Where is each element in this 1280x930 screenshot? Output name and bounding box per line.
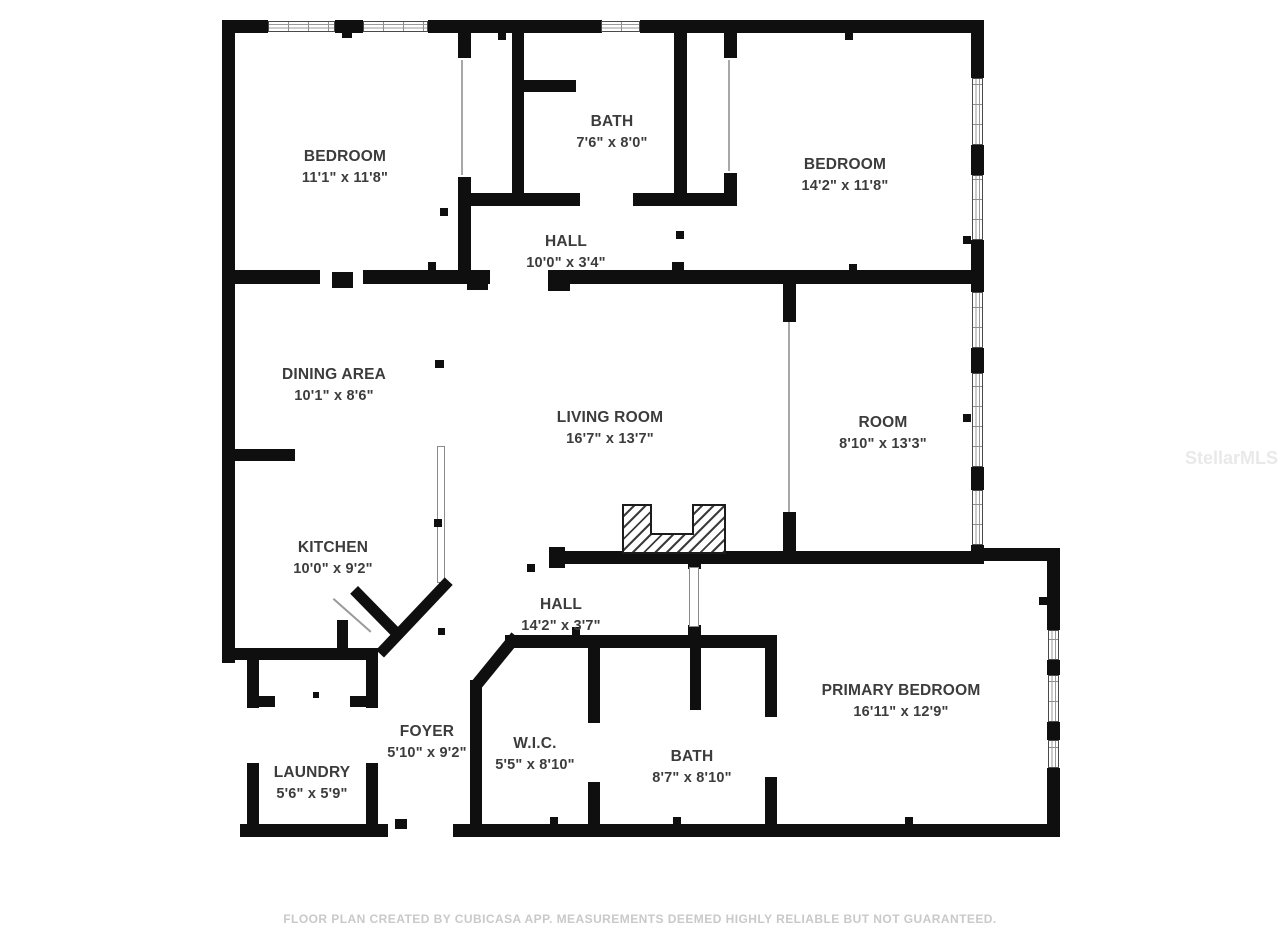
- room-name: PRIMARY BEDROOM: [822, 681, 981, 702]
- wall-end-cap: [549, 547, 565, 568]
- window: [1048, 675, 1059, 722]
- tick: [498, 33, 506, 40]
- room-name: HALL: [526, 232, 606, 253]
- room-name: DINING AREA: [282, 365, 386, 386]
- fireplace-firebox: [650, 504, 694, 535]
- window: [268, 21, 335, 32]
- wall-bath-right: [674, 30, 687, 203]
- room-dims: 5'5" x 8'10": [495, 755, 575, 776]
- wall-bath-bottom: [458, 193, 580, 206]
- tick: [313, 692, 319, 698]
- window: [972, 175, 983, 240]
- wall-wic-bath-divider: [588, 637, 600, 723]
- room-name: BEDROOM: [302, 147, 388, 168]
- room-dims: 8'10" x 13'3": [839, 434, 927, 455]
- room-name: HALL: [521, 595, 601, 616]
- door-jamb: [548, 270, 570, 291]
- tick: [440, 208, 448, 216]
- window: [1048, 740, 1059, 768]
- room-dims: 14'2" x 3'7": [521, 616, 601, 637]
- mls-watermark: StellarMLS: [1185, 448, 1278, 469]
- wall-entry-stub: [337, 620, 348, 649]
- room-name: ROOM: [839, 413, 927, 434]
- window: [972, 78, 983, 145]
- tick: [849, 264, 857, 271]
- tick: [963, 236, 971, 244]
- room-label-bath-top: BATH 7'6" x 8'0": [576, 112, 647, 153]
- wall-room-divider: [783, 284, 796, 322]
- tick: [342, 30, 352, 38]
- room-label-laundry: LAUNDRY 5'6" x 5'9": [274, 763, 351, 804]
- wall-primary-right: [1047, 722, 1060, 740]
- tick: [905, 817, 913, 825]
- room-divider-line: [788, 322, 790, 512]
- tick: [435, 360, 444, 368]
- tick: [428, 262, 436, 270]
- wall-left: [222, 20, 235, 663]
- room-label-hall-bottom: HALL 14'2" x 3'7": [521, 595, 601, 636]
- wall-primary-right: [1047, 660, 1060, 675]
- room-name: BATH: [652, 747, 732, 768]
- wall-right: [971, 467, 984, 490]
- wall-room-divider: [783, 512, 796, 554]
- room-label-bedroom-1: BEDROOM 11'1" x 11'8": [302, 147, 388, 188]
- room-label-primary-bedroom: PRIMARY BEDROOM 16'11" x 12'9": [822, 681, 981, 722]
- hall-primary-opening: [689, 567, 699, 627]
- wall-bedroom2-left: [724, 30, 737, 58]
- room-dims: 10'1" x 8'6": [282, 386, 386, 407]
- room-label-bath-bottom: BATH 8'7" x 8'10": [652, 747, 732, 788]
- tick: [672, 262, 684, 271]
- room-name: LAUNDRY: [274, 763, 351, 784]
- footer-disclaimer: FLOOR PLAN CREATED BY CUBICASA APP. MEAS…: [0, 912, 1280, 926]
- room-dims: 10'0" x 3'4": [526, 253, 606, 274]
- closet-opening-line: [728, 60, 730, 171]
- tick: [550, 817, 558, 825]
- wall-bath-bottom: [633, 193, 737, 206]
- room-label-wic: W.I.C. 5'5" x 8'10": [495, 734, 575, 775]
- tick: [438, 628, 445, 635]
- wall-laundry-top: [222, 648, 378, 660]
- wall-right: [971, 20, 984, 78]
- room-label-dining: DINING AREA 10'1" x 8'6": [282, 365, 386, 406]
- room-dims: 11'1" x 11'8": [302, 168, 388, 189]
- room-name: BATH: [576, 112, 647, 133]
- tick: [395, 819, 407, 829]
- room-dims: 5'6" x 5'9": [274, 784, 351, 805]
- window: [972, 373, 983, 467]
- wall-laundry-right: [366, 648, 378, 708]
- wall-laundry-right: [366, 763, 378, 837]
- tick: [845, 33, 853, 40]
- room-name: LIVING ROOM: [557, 408, 663, 429]
- room-label-room: ROOM 8'10" x 13'3": [839, 413, 927, 454]
- room-label-living: LIVING ROOM 16'7" x 13'7": [557, 408, 663, 449]
- room-dims: 16'7" x 13'7": [557, 429, 663, 450]
- tick: [527, 564, 535, 572]
- room-label-foyer: FOYER 5'10" x 9'2": [387, 722, 467, 763]
- door-jamb: [467, 277, 488, 290]
- tick: [676, 231, 684, 239]
- wall-laundry-left: [247, 648, 259, 708]
- room-dims: 16'11" x 12'9": [822, 702, 981, 723]
- room-dims: 14'2" x 11'8": [802, 176, 889, 197]
- wall-shower: [524, 80, 576, 92]
- room-dims: 7'6" x 8'0": [576, 133, 647, 154]
- wall-bath-left: [512, 30, 524, 203]
- wall-right: [971, 240, 984, 292]
- door-jamb: [350, 696, 366, 707]
- wall-hall-bottom: [548, 270, 982, 284]
- wall-hall-bottom: [222, 270, 320, 284]
- wall-wic-bath-divider: [588, 782, 600, 837]
- window: [601, 21, 640, 32]
- wall-bedroom1-right: [458, 30, 471, 58]
- closet-opening-line: [461, 60, 463, 175]
- room-name: W.I.C.: [495, 734, 575, 755]
- room-dims: 5'10" x 9'2": [387, 743, 467, 764]
- room-dims: 8'7" x 8'10": [652, 768, 732, 789]
- tick: [963, 414, 971, 422]
- wall-right: [971, 145, 984, 175]
- wall-wic-left: [470, 680, 482, 837]
- wall-bath2-partition: [690, 648, 701, 710]
- wall-bottom: [453, 824, 1060, 837]
- room-name: BEDROOM: [802, 155, 889, 176]
- room-dims: 10'0" x 9'2": [293, 559, 373, 580]
- room-label-bedroom-2: BEDROOM 14'2" x 11'8": [802, 155, 889, 196]
- wall-bath2-primary-divider: [765, 777, 777, 837]
- wall-living-bottom: [553, 551, 984, 564]
- window: [972, 292, 983, 348]
- wall-hall2-bottom: [505, 635, 777, 648]
- window: [363, 21, 428, 32]
- door-jamb: [259, 696, 275, 707]
- room-label-hall-top: HALL 10'0" x 3'4": [526, 232, 606, 273]
- room-name: FOYER: [387, 722, 467, 743]
- tick: [673, 817, 681, 825]
- room-label-kitchen: KITCHEN 10'0" x 9'2": [293, 538, 373, 579]
- kitchen-pass-opening: [437, 446, 445, 583]
- wall-right: [971, 348, 984, 373]
- wall-bath2-primary-divider: [765, 637, 777, 717]
- door-jamb: [332, 272, 353, 288]
- window: [1048, 630, 1059, 660]
- tick: [434, 519, 442, 527]
- room-name: KITCHEN: [293, 538, 373, 559]
- floor-plan: BEDROOM 11'1" x 11'8" BATH 7'6" x 8'0" B…: [0, 0, 1280, 930]
- wall-dining-stub: [222, 449, 295, 461]
- window: [972, 490, 983, 545]
- wall-primary-right: [1047, 548, 1060, 630]
- wall-laundry-left: [247, 763, 259, 837]
- wall-top: [640, 20, 984, 33]
- tick: [1039, 597, 1047, 605]
